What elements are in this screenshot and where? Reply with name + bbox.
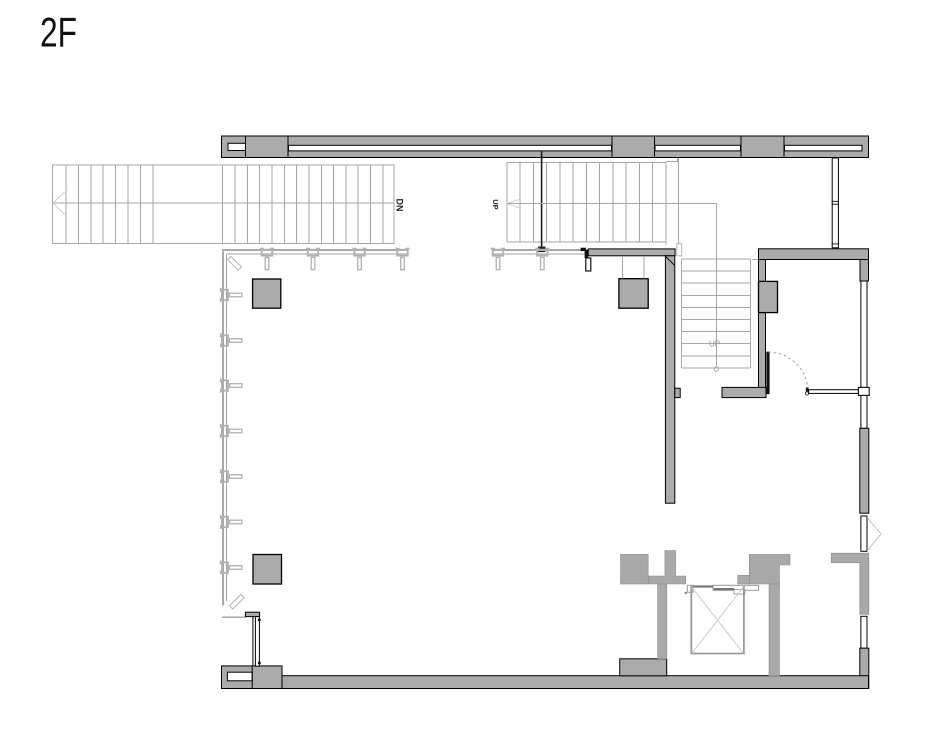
svg-text:UP: UP [491,199,500,209]
svg-text:DN: DN [395,199,405,212]
svg-text:UP: UP [709,339,720,348]
svg-text:2F: 2F [40,9,77,56]
